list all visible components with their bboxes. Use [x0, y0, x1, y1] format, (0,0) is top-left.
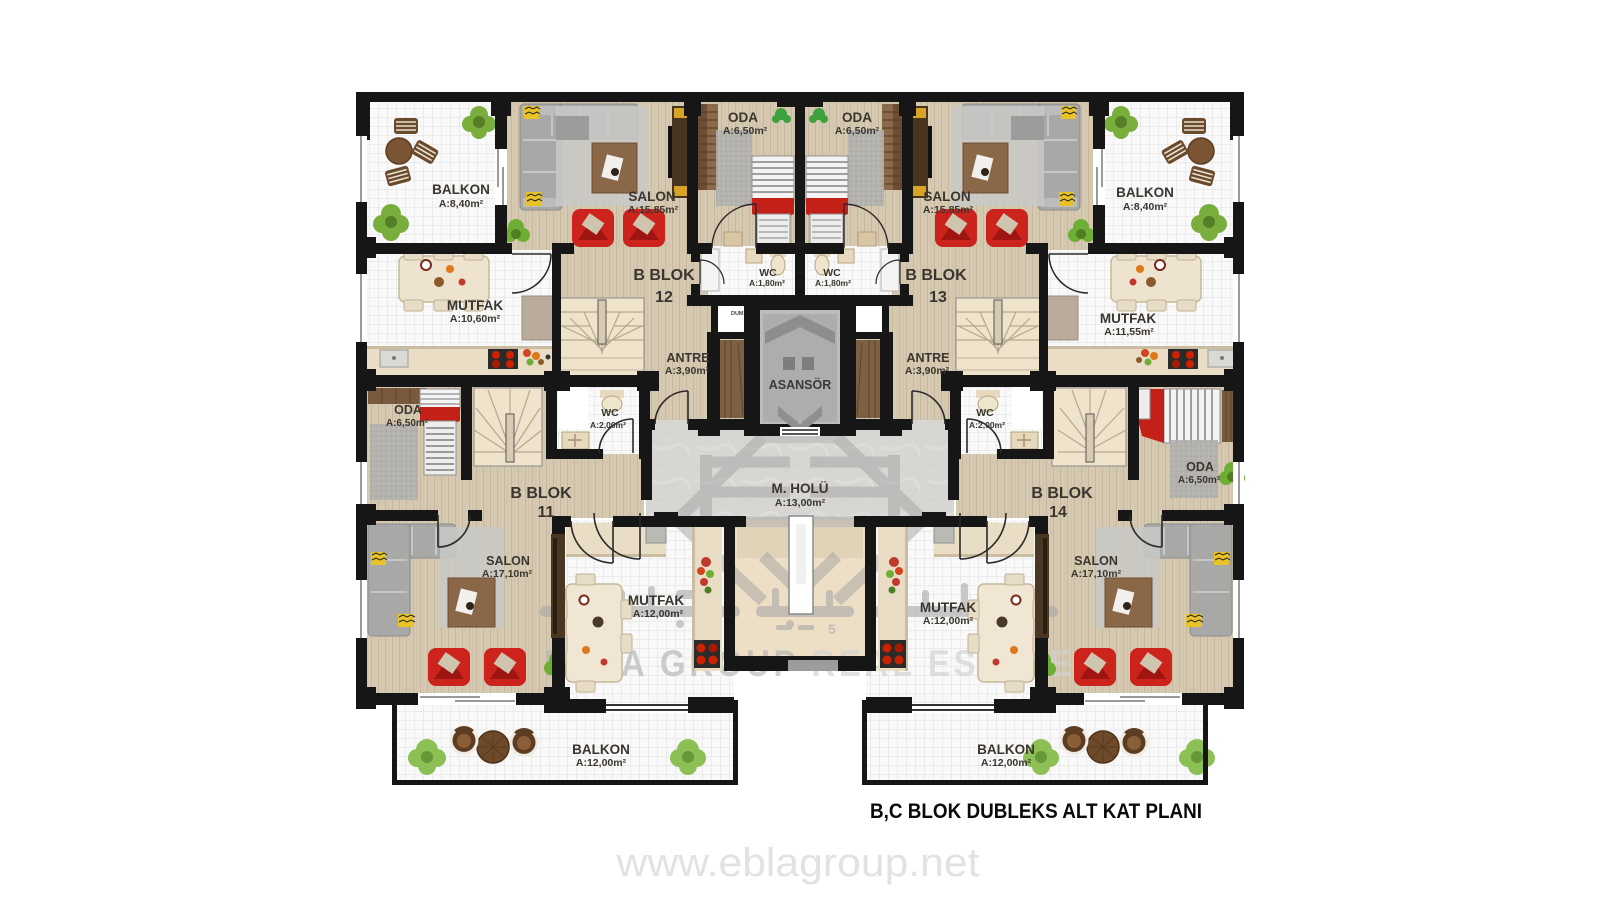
- svg-text:A:6,50m²: A:6,50m²: [386, 418, 429, 429]
- svg-text:ODA: ODA: [1186, 460, 1214, 474]
- svg-text:A:2,00m²: A:2,00m²: [969, 420, 1005, 430]
- svg-text:14: 14: [1049, 504, 1067, 521]
- svg-text:SALON: SALON: [923, 189, 970, 204]
- svg-text:BALKON: BALKON: [572, 742, 630, 757]
- svg-text:WC: WC: [601, 407, 619, 419]
- svg-text:A:17,10m²: A:17,10m²: [482, 568, 533, 580]
- svg-text:A:6,50m²: A:6,50m²: [723, 125, 768, 137]
- svg-text:A:3,90m²: A:3,90m²: [905, 365, 950, 377]
- svg-text:A:12,00m²: A:12,00m²: [981, 757, 1032, 769]
- svg-text:A:13,00m²: A:13,00m²: [775, 497, 826, 509]
- svg-text:A:8,40m²: A:8,40m²: [1123, 201, 1168, 213]
- svg-text:MUTFAK: MUTFAK: [447, 298, 503, 313]
- svg-text:ODA: ODA: [842, 110, 872, 125]
- svg-text:ASANSÖR: ASANSÖR: [769, 377, 832, 392]
- svg-text:ANTRE: ANTRE: [666, 351, 709, 365]
- svg-text:13: 13: [929, 289, 947, 306]
- svg-text:A:11,55m²: A:11,55m²: [1104, 326, 1154, 338]
- svg-text:A:8,40m²: A:8,40m²: [439, 198, 484, 210]
- svg-text:BALKON: BALKON: [1116, 185, 1174, 200]
- svg-text:11: 11: [538, 504, 555, 521]
- svg-text:A:12,00m²: A:12,00m²: [923, 615, 974, 627]
- svg-text:M. HOLÜ: M. HOLÜ: [772, 481, 829, 496]
- svg-text:SALON: SALON: [628, 189, 675, 204]
- svg-text:A:6,50m²: A:6,50m²: [1178, 475, 1221, 486]
- svg-text:SALON: SALON: [486, 554, 530, 568]
- svg-text:A:1,80m²: A:1,80m²: [815, 278, 851, 288]
- svg-text:12: 12: [655, 289, 673, 306]
- svg-text:A:17,10m²: A:17,10m²: [1071, 568, 1122, 580]
- svg-text:WC: WC: [976, 407, 994, 419]
- svg-text:MUTFAK: MUTFAK: [1100, 311, 1156, 326]
- svg-text:B,C BLOK DUBLEKS ALT KAT PLANI: B,C BLOK DUBLEKS ALT KAT PLANI: [870, 800, 1202, 823]
- svg-text:A:6,50m²: A:6,50m²: [835, 125, 880, 137]
- svg-text:SALON: SALON: [1074, 554, 1118, 568]
- svg-text:A:12,00m²: A:12,00m²: [576, 757, 627, 769]
- svg-text:ODA: ODA: [728, 110, 758, 125]
- svg-text:BALKON: BALKON: [432, 182, 490, 197]
- svg-text:DUM.: DUM.: [731, 311, 746, 317]
- svg-text:A:3,90m²: A:3,90m²: [665, 365, 710, 377]
- svg-text:BALKON: BALKON: [977, 742, 1035, 757]
- svg-text:ODA: ODA: [394, 403, 422, 417]
- svg-text:B BLOK: B BLOK: [510, 485, 572, 502]
- svg-text:MUTFAK: MUTFAK: [628, 593, 684, 608]
- svg-text:MUTFAK: MUTFAK: [920, 600, 976, 615]
- svg-text:A:15,85m²: A:15,85m²: [923, 204, 974, 216]
- svg-text:A:15,85m²: A:15,85m²: [628, 204, 679, 216]
- svg-text:B BLOK: B BLOK: [633, 267, 695, 284]
- svg-text:www.eblagroup.net: www.eblagroup.net: [615, 841, 979, 885]
- svg-text:A:10,60m²: A:10,60m²: [450, 313, 501, 325]
- svg-text:B BLOK: B BLOK: [905, 267, 967, 284]
- svg-text:A:12,00m²: A:12,00m²: [633, 608, 684, 620]
- svg-text:A:1,80m²: A:1,80m²: [749, 278, 785, 288]
- svg-text:A:2,00m²: A:2,00m²: [590, 420, 626, 430]
- svg-text:B BLOK: B BLOK: [1031, 485, 1093, 502]
- svg-text:5: 5: [828, 621, 836, 637]
- svg-text:ANTRE: ANTRE: [906, 351, 949, 365]
